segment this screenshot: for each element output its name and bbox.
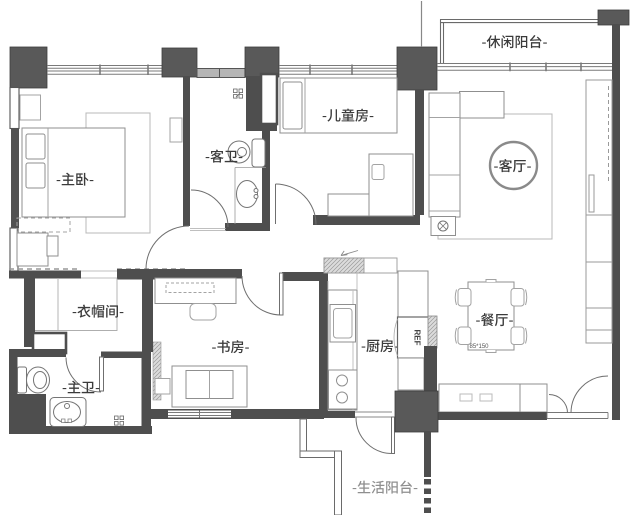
svg-text:REF: REF [412,330,421,346]
svg-text:85*150: 85*150 [469,344,489,350]
